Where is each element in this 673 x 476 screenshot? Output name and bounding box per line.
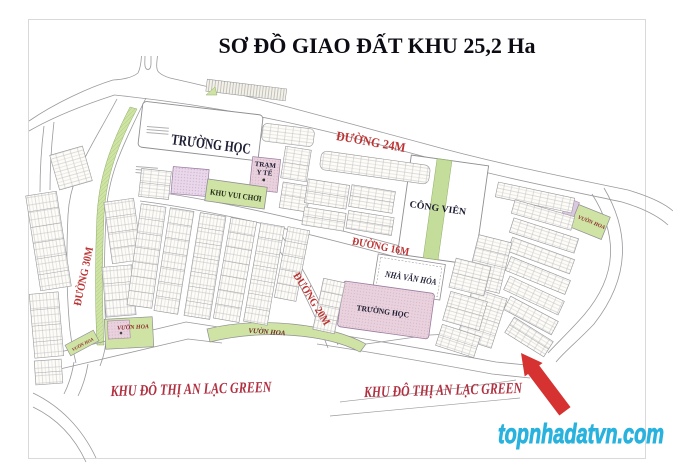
svg-text:topnhadatvn.com: topnhadatvn.com bbox=[498, 418, 664, 449]
svg-text:SƠ ĐỒ GIAO ĐẤT KHU 25,2 Ha: SƠ ĐỒ GIAO ĐẤT KHU 25,2 Ha bbox=[219, 33, 536, 58]
svg-text:Y TẾ: Y TẾ bbox=[256, 168, 273, 178]
